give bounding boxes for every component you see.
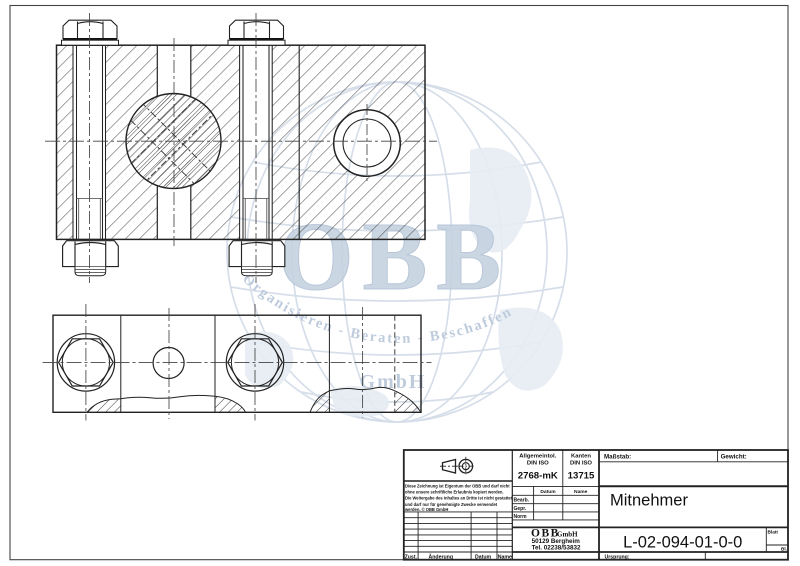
svg-text:werden. © OBB GmbH: werden. © OBB GmbH (404, 507, 448, 512)
svg-text:Ursprung:: Ursprung: (605, 555, 630, 561)
svg-text:Name: Name (574, 489, 588, 495)
svg-text:Gewicht:: Gewicht: (721, 453, 747, 460)
svg-text:Name: Name (498, 555, 512, 561)
svg-text:Bearb.: Bearb. (514, 498, 530, 504)
svg-text:13715: 13715 (568, 471, 595, 482)
svg-text:DIN ISO: DIN ISO (527, 461, 549, 467)
svg-text:Allgemeintol.: Allgemeintol. (519, 454, 556, 460)
svg-text:ohne unsere schriftliche Erlau: ohne unsere schriftliche Erlaubnis kopie… (405, 490, 504, 495)
svg-text:Tel. 02238/53832: Tel. 02238/53832 (532, 545, 581, 552)
svg-text:DIN ISO: DIN ISO (570, 461, 592, 467)
svg-text:Datum: Datum (540, 489, 556, 495)
svg-text:Änderung: Änderung (429, 554, 454, 561)
svg-text:Maßstab:: Maßstab: (604, 453, 631, 460)
svg-text:Die Weitergabe des Inhaltes an: Die Weitergabe des Inhaltes an Dritte is… (405, 496, 513, 501)
svg-text:L-02-094-01-0-0: L-02-094-01-0-0 (623, 534, 742, 552)
svg-text:Norm: Norm (514, 514, 528, 520)
svg-text:Bl.: Bl. (781, 546, 787, 551)
svg-text:Kanten: Kanten (571, 454, 591, 460)
svg-text:Gepr.: Gepr. (514, 506, 527, 512)
svg-text:Datum: Datum (475, 555, 492, 561)
svg-text:2768-mK: 2768-mK (518, 471, 558, 482)
svg-text:Diese Zeichnung ist Eigentum d: Diese Zeichnung ist Eigentum der OBB und… (405, 483, 510, 488)
svg-text:Zust.: Zust. (405, 555, 418, 561)
svg-text:Mitnehmer: Mitnehmer (610, 492, 688, 510)
svg-text:Blatt: Blatt (768, 530, 779, 535)
